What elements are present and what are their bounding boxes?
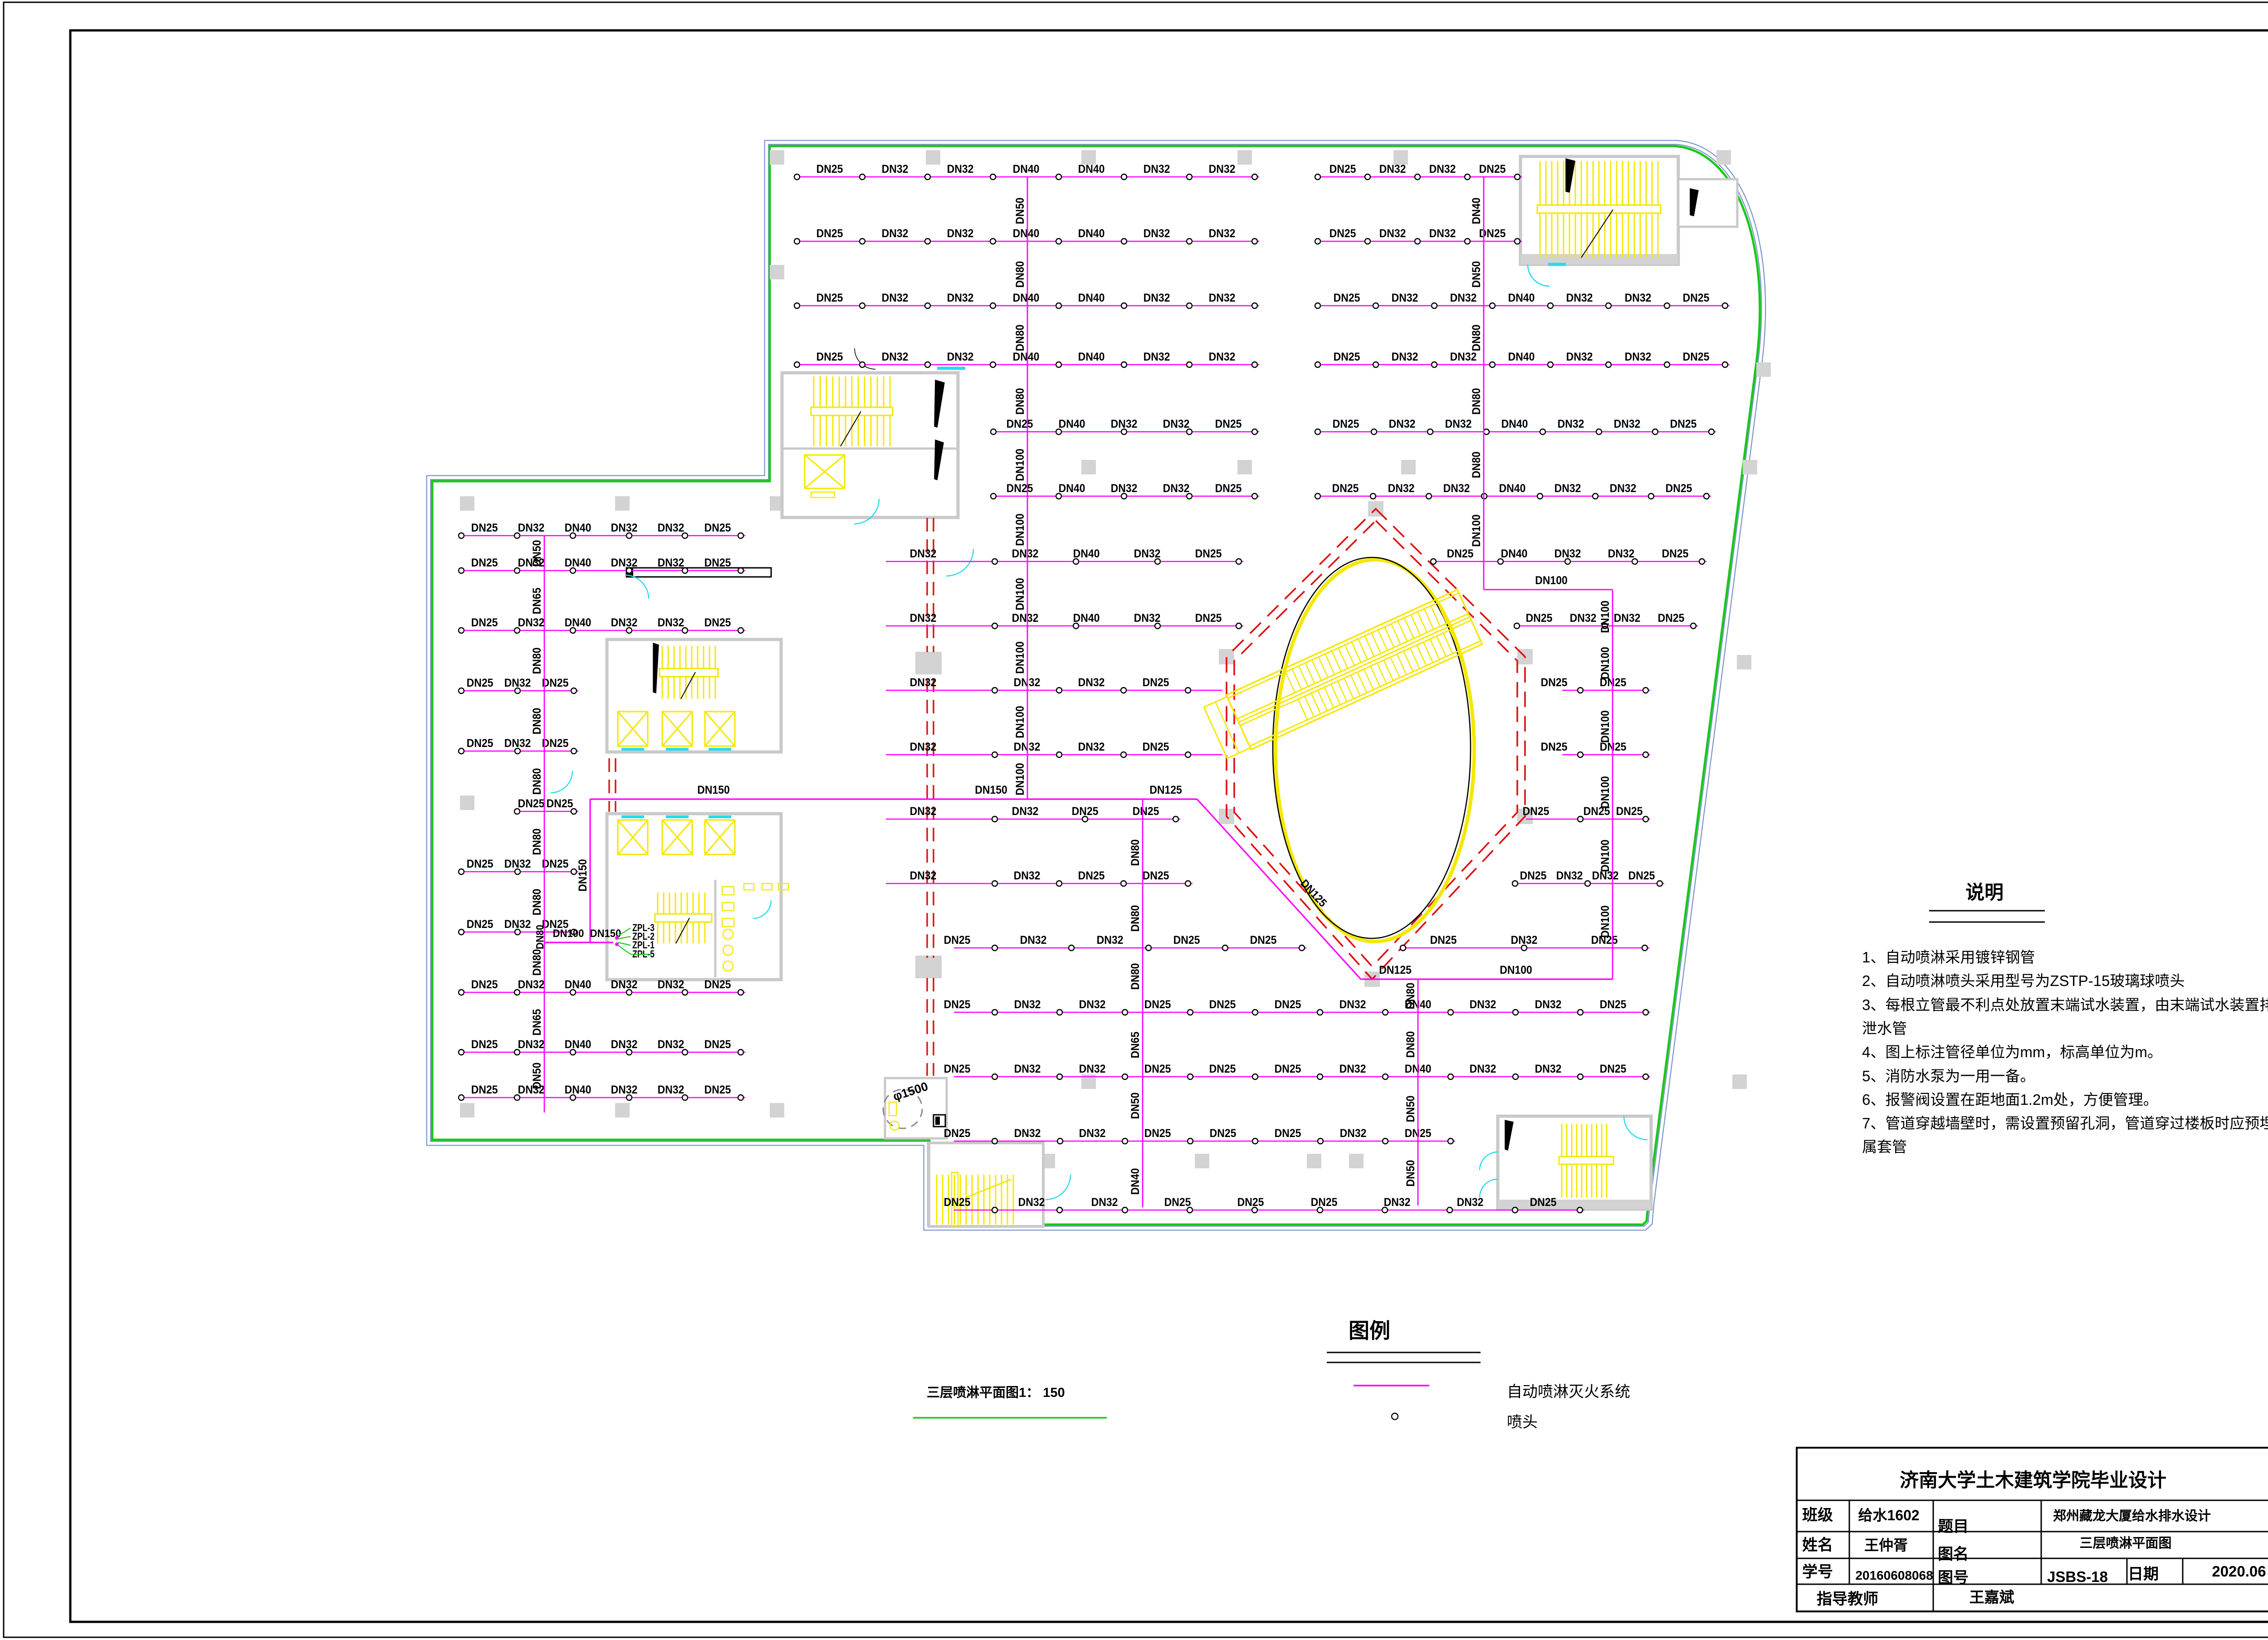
svg-text:DN25: DN25 (944, 1127, 971, 1140)
svg-text:DN25: DN25 (1144, 998, 1171, 1011)
svg-text:DN100: DN100 (553, 927, 584, 939)
svg-text:DN25: DN25 (944, 1063, 971, 1075)
svg-text:属套管: 属套管 (1862, 1138, 1907, 1155)
svg-text:DN25: DN25 (1209, 1063, 1236, 1075)
svg-text:DN32: DN32 (1554, 547, 1581, 560)
svg-text:DN40: DN40 (1501, 547, 1528, 560)
svg-text:DN40: DN40 (565, 522, 591, 534)
svg-text:DN25: DN25 (704, 978, 731, 991)
svg-text:DN100: DN100 (1014, 763, 1026, 796)
svg-text:DN32: DN32 (1610, 482, 1637, 495)
svg-text:DN25: DN25 (1143, 741, 1169, 753)
svg-text:DN25: DN25 (1007, 418, 1033, 430)
svg-text:7、管道穿越墙壁时，需设置预留孔洞，管道穿过楼板时应预埋金: 7、管道穿越墙壁时，需设置预留孔洞，管道穿过楼板时应预埋金 (1862, 1115, 2268, 1132)
svg-text:DN25: DN25 (1330, 227, 1356, 240)
svg-text:DN25: DN25 (467, 677, 494, 689)
svg-text:DN25: DN25 (816, 163, 843, 176)
svg-text:DN80: DN80 (531, 708, 543, 735)
svg-text:郑州藏龙大厦给水排水设计: 郑州藏龙大厦给水排水设计 (2053, 1508, 2211, 1523)
svg-text:DN32: DN32 (1163, 418, 1190, 430)
svg-text:DN32: DN32 (1012, 805, 1039, 818)
svg-text:DN32: DN32 (910, 612, 937, 625)
svg-text:DN80: DN80 (1470, 388, 1483, 415)
svg-text:DN100: DN100 (1599, 710, 1612, 743)
svg-text:DN150: DN150 (697, 784, 730, 796)
svg-text:DN80: DN80 (534, 925, 546, 949)
svg-text:DN32: DN32 (882, 351, 909, 363)
svg-text:DN80: DN80 (1014, 388, 1026, 415)
svg-text:DN25: DN25 (1143, 869, 1169, 882)
svg-text:DN150: DN150 (975, 784, 1007, 796)
svg-text:DN100: DN100 (1500, 964, 1532, 976)
svg-text:5、消防水泵为一用一备。: 5、消防水泵为一用一备。 (1862, 1068, 2035, 1084)
svg-text:DN100: DN100 (1470, 514, 1483, 547)
svg-text:DN32: DN32 (1134, 547, 1161, 560)
svg-text:DN32: DN32 (1450, 351, 1477, 363)
svg-text:DN32: DN32 (910, 676, 937, 689)
svg-text:DN32: DN32 (1144, 292, 1170, 304)
svg-text:DN25: DN25 (1007, 482, 1033, 495)
svg-text:DN25: DN25 (1430, 934, 1457, 947)
svg-text:DN32: DN32 (1511, 934, 1538, 947)
svg-text:DN32: DN32 (611, 522, 638, 534)
svg-text:DN40: DN40 (565, 978, 591, 991)
svg-text:DN25: DN25 (1164, 1196, 1191, 1209)
svg-text:DN32: DN32 (1566, 351, 1593, 363)
svg-text:DN32: DN32 (1209, 227, 1236, 240)
svg-text:DN100: DN100 (1599, 840, 1612, 872)
svg-text:DN32: DN32 (1445, 418, 1472, 430)
svg-text:DN25: DN25 (1628, 869, 1655, 882)
svg-text:三层喷淋平面图: 三层喷淋平面图 (2079, 1536, 2171, 1551)
svg-text:DN32: DN32 (611, 616, 638, 629)
svg-text:DN32: DN32 (1470, 1063, 1496, 1075)
svg-text:DN40: DN40 (1059, 482, 1085, 495)
svg-text:JSBS-18: JSBS-18 (2047, 1568, 2108, 1585)
svg-text:DN50: DN50 (531, 1063, 543, 1089)
svg-text:DN32: DN32 (1558, 418, 1584, 430)
svg-text:DN32: DN32 (882, 292, 909, 304)
svg-text:DN32: DN32 (947, 163, 974, 176)
svg-text:DN25: DN25 (704, 1038, 731, 1051)
svg-text:DN25: DN25 (1275, 1127, 1301, 1140)
svg-text:DN40: DN40 (1078, 351, 1105, 363)
svg-text:DN80: DN80 (531, 829, 543, 855)
svg-text:DN25: DN25 (1479, 227, 1506, 240)
svg-text:DN25: DN25 (1173, 934, 1200, 947)
svg-text:DN32: DN32 (1625, 292, 1652, 304)
svg-text:DN25: DN25 (1334, 292, 1360, 304)
svg-text:DN25: DN25 (704, 616, 731, 629)
svg-text:DN25: DN25 (1600, 998, 1627, 1011)
svg-text:DN65: DN65 (531, 1009, 543, 1036)
svg-text:DN40: DN40 (1508, 351, 1535, 363)
svg-text:DN32: DN32 (611, 1084, 638, 1096)
svg-text:DN100: DN100 (1014, 449, 1026, 481)
svg-text:DN32: DN32 (611, 978, 638, 991)
svg-text:2、自动喷淋喷头采用型号为ZSTP-15玻璃球喷头: 2、自动喷淋喷头采用型号为ZSTP-15玻璃球喷头 (1862, 972, 2185, 989)
svg-text:DN25: DN25 (1479, 163, 1506, 176)
svg-text:DN25: DN25 (944, 998, 971, 1011)
svg-text:DN32: DN32 (910, 741, 937, 753)
svg-text:DN32: DN32 (910, 869, 937, 882)
svg-text:DN32: DN32 (1340, 1127, 1367, 1140)
svg-text:DN25: DN25 (467, 737, 494, 750)
svg-text:DN25: DN25 (1195, 612, 1222, 625)
svg-text:DN25: DN25 (1541, 741, 1568, 753)
svg-text:DN25: DN25 (1250, 934, 1277, 947)
svg-text:DN40: DN40 (565, 1038, 591, 1051)
svg-text:4、图上标注管径单位为mm，标高单位为m。: 4、图上标注管径单位为mm，标高单位为m。 (1862, 1044, 2162, 1060)
svg-text:DN100: DN100 (1014, 578, 1026, 610)
svg-text:DN25: DN25 (1666, 482, 1692, 495)
svg-text:DN25: DN25 (1275, 1063, 1301, 1075)
svg-text:DN50: DN50 (1404, 1096, 1417, 1123)
svg-text:DN32: DN32 (518, 616, 545, 629)
svg-text:DN25: DN25 (1143, 676, 1169, 689)
svg-text:DN25: DN25 (547, 797, 573, 810)
svg-text:DN100: DN100 (1599, 600, 1612, 633)
svg-text:DN32: DN32 (1450, 292, 1477, 304)
svg-text:DN25: DN25 (944, 1196, 971, 1209)
svg-text:DN40: DN40 (1013, 163, 1040, 176)
svg-text:DN32: DN32 (1209, 351, 1236, 363)
svg-text:DN25: DN25 (704, 556, 731, 569)
svg-text:DN32: DN32 (1535, 1063, 1562, 1075)
svg-text:DN40: DN40 (1129, 1168, 1142, 1195)
svg-text:DN32: DN32 (1614, 418, 1641, 430)
svg-text:DN25: DN25 (816, 227, 843, 240)
svg-text:DN25: DN25 (1209, 998, 1236, 1011)
svg-text:DN80: DN80 (1404, 1031, 1417, 1058)
svg-text:DN40: DN40 (1470, 198, 1483, 225)
svg-text:DN32: DN32 (947, 351, 974, 363)
svg-text:DN25: DN25 (1541, 676, 1568, 689)
svg-text:DN32: DN32 (504, 918, 531, 931)
svg-text:DN32: DN32 (1097, 934, 1124, 947)
svg-text:DN80: DN80 (531, 949, 543, 976)
svg-text:DN25: DN25 (1215, 482, 1242, 495)
svg-text:DN32: DN32 (1379, 227, 1406, 240)
svg-text:DN25: DN25 (1333, 418, 1359, 430)
svg-text:DN32: DN32 (1608, 547, 1635, 560)
svg-text:3、每根立管最不利点处放置末端试水装置，由末端试水装置排入: 3、每根立管最不利点处放置末端试水装置，由末端试水装置排入 (1862, 996, 2268, 1013)
svg-text:DN25: DN25 (1144, 1063, 1171, 1075)
svg-text:DN32: DN32 (1144, 227, 1170, 240)
svg-text:DN25: DN25 (1311, 1196, 1338, 1209)
svg-text:DN32: DN32 (1566, 292, 1593, 304)
svg-text:DN80: DN80 (1470, 452, 1483, 478)
svg-text:DN32: DN32 (1209, 163, 1236, 176)
svg-text:DN25: DN25 (1210, 1127, 1237, 1140)
svg-text:DN25: DN25 (1523, 805, 1549, 818)
svg-text:DN25: DN25 (1275, 998, 1301, 1011)
svg-text:DN100: DN100 (1599, 776, 1612, 809)
svg-text:DN32: DN32 (1163, 482, 1190, 495)
svg-text:DN25: DN25 (1072, 805, 1099, 818)
svg-text:DN32: DN32 (504, 858, 531, 870)
svg-text:DN40: DN40 (1078, 227, 1105, 240)
svg-text:DN32: DN32 (1014, 1127, 1041, 1140)
svg-text:DN32: DN32 (1443, 482, 1470, 495)
svg-text:DN32: DN32 (1014, 869, 1041, 882)
svg-text:DN32: DN32 (1389, 418, 1416, 430)
svg-text:DN25: DN25 (704, 1084, 731, 1096)
svg-text:DN100: DN100 (1599, 647, 1612, 679)
svg-text:DN32: DN32 (947, 292, 974, 304)
svg-text:DN100: DN100 (1599, 905, 1612, 938)
svg-text:DN80: DN80 (1404, 983, 1417, 1010)
svg-text:DN32: DN32 (1078, 741, 1105, 753)
svg-text:DN32: DN32 (910, 805, 937, 818)
svg-text:DN25: DN25 (518, 797, 545, 810)
svg-text:2020.06: 2020.06 (2212, 1563, 2266, 1580)
svg-text:DN32: DN32 (1339, 998, 1366, 1011)
svg-text:DN80: DN80 (1129, 963, 1142, 990)
svg-text:DN32: DN32 (518, 978, 545, 991)
svg-text:DN32: DN32 (1339, 1063, 1366, 1075)
svg-text:DN25: DN25 (542, 737, 569, 750)
svg-text:DN32: DN32 (1020, 934, 1047, 947)
svg-text:DN25: DN25 (1600, 1063, 1627, 1075)
svg-text:DN32: DN32 (947, 227, 974, 240)
svg-text:DN25: DN25 (1670, 418, 1697, 430)
svg-text:DN100: DN100 (1535, 574, 1568, 587)
svg-text:DN25: DN25 (1334, 351, 1360, 363)
svg-text:自动喷淋灭火系统: 自动喷淋灭火系统 (1507, 1383, 1630, 1401)
svg-text:日期: 日期 (2128, 1566, 2159, 1583)
svg-text:DN32: DN32 (1470, 998, 1496, 1011)
svg-text:DN32: DN32 (504, 737, 531, 750)
svg-text:DN32: DN32 (1570, 612, 1597, 625)
svg-text:DN125: DN125 (1379, 964, 1412, 976)
svg-text:DN32: DN32 (1209, 292, 1236, 304)
svg-text:DN32: DN32 (1379, 163, 1406, 176)
svg-text:DN25: DN25 (1616, 805, 1643, 818)
svg-text:DN65: DN65 (531, 588, 543, 615)
svg-text:DN80: DN80 (1129, 840, 1142, 866)
svg-text:DN25: DN25 (471, 556, 498, 569)
svg-text:DN32: DN32 (518, 1038, 545, 1051)
svg-text:DN25: DN25 (1530, 1196, 1557, 1209)
svg-text:DN25: DN25 (471, 522, 498, 534)
svg-text:DN25: DN25 (1447, 547, 1474, 560)
svg-text:DN32: DN32 (1014, 1063, 1041, 1075)
svg-text:DN25: DN25 (1237, 1196, 1264, 1209)
svg-text:DN150: DN150 (577, 859, 589, 892)
svg-text:DN25: DN25 (467, 918, 494, 931)
svg-text:王嘉斌: 王嘉斌 (1970, 1589, 2014, 1606)
svg-text:DN32: DN32 (882, 163, 909, 176)
svg-text:DN80: DN80 (531, 768, 543, 795)
svg-text:DN25: DN25 (471, 1084, 498, 1096)
svg-text:DN32: DN32 (611, 556, 638, 569)
svg-text:DN125: DN125 (1149, 784, 1182, 796)
svg-text:DN25: DN25 (944, 934, 971, 947)
svg-text:DN32: DN32 (658, 556, 684, 569)
svg-text:DN25: DN25 (1133, 805, 1159, 818)
svg-text:DN32: DN32 (1535, 998, 1562, 1011)
svg-text:DN25: DN25 (1215, 418, 1242, 430)
svg-text:DN32: DN32 (1079, 1063, 1106, 1075)
svg-text:题目: 题目 (1938, 1518, 1969, 1535)
svg-text:DN25: DN25 (1144, 1127, 1171, 1140)
svg-text:DN40: DN40 (1499, 482, 1526, 495)
svg-text:给水1602: 给水1602 (1858, 1507, 1919, 1523)
svg-text:DN50: DN50 (531, 540, 543, 567)
svg-text:DN32: DN32 (1012, 547, 1039, 560)
svg-text:DN50: DN50 (1404, 1160, 1417, 1187)
svg-text:DN40: DN40 (1073, 612, 1100, 625)
svg-text:DN40: DN40 (1059, 418, 1085, 430)
svg-text:DN80: DN80 (531, 648, 543, 674)
svg-text:图名: 图名 (1938, 1546, 1969, 1563)
svg-text:图例: 图例 (1349, 1319, 1390, 1342)
svg-text:DN32: DN32 (1012, 612, 1039, 625)
svg-text:DN32: DN32 (1078, 676, 1105, 689)
svg-text:DN32: DN32 (1018, 1196, 1045, 1209)
svg-text:DN25: DN25 (1330, 163, 1356, 176)
svg-text:DN32: DN32 (518, 522, 545, 534)
svg-text:DN65: DN65 (1129, 1032, 1142, 1059)
svg-text:DN40: DN40 (565, 616, 591, 629)
svg-text:DN25: DN25 (1662, 547, 1689, 560)
svg-text:DN40: DN40 (1013, 292, 1040, 304)
svg-text:DN50: DN50 (1014, 198, 1026, 225)
svg-text:DN80: DN80 (531, 889, 543, 916)
svg-text:DN32: DN32 (1429, 163, 1456, 176)
svg-text:王仲胥: 王仲胥 (1864, 1537, 1908, 1553)
svg-text:DN32: DN32 (611, 1038, 638, 1051)
svg-text:DN40: DN40 (565, 1084, 591, 1096)
svg-text:DN32: DN32 (1091, 1196, 1118, 1209)
svg-text:DN32: DN32 (1111, 482, 1138, 495)
svg-text:DN50: DN50 (1129, 1093, 1142, 1119)
svg-text:DN100: DN100 (1014, 513, 1026, 546)
svg-text:DN80: DN80 (1014, 325, 1026, 351)
svg-text:DN25: DN25 (1658, 612, 1685, 625)
svg-text:DN32: DN32 (658, 1038, 684, 1051)
svg-text:DN40: DN40 (1013, 227, 1040, 240)
svg-text:DN32: DN32 (1134, 612, 1161, 625)
svg-text:DN32: DN32 (1392, 351, 1418, 363)
svg-text:DN80: DN80 (1014, 261, 1026, 288)
svg-text:DN32: DN32 (658, 978, 684, 991)
svg-text:三层喷淋平面图1： 150: 三层喷淋平面图1： 150 (927, 1385, 1065, 1400)
svg-text:DN25: DN25 (704, 522, 731, 534)
svg-text:DN32: DN32 (1384, 1196, 1411, 1209)
svg-text:DN32: DN32 (1625, 351, 1652, 363)
svg-text:DN25: DN25 (467, 858, 494, 870)
svg-text:DN25: DN25 (471, 978, 498, 991)
svg-text:DN25: DN25 (1195, 547, 1222, 560)
svg-text:DN40: DN40 (1508, 292, 1535, 304)
svg-text:说明: 说明 (1965, 882, 2004, 903)
svg-text:DN32: DN32 (1388, 482, 1415, 495)
svg-text:DN80: DN80 (1129, 905, 1142, 932)
svg-text:DN32: DN32 (658, 522, 684, 534)
svg-text:DN32: DN32 (1392, 292, 1418, 304)
svg-text:DN40: DN40 (1501, 418, 1528, 430)
svg-text:DN25: DN25 (471, 616, 498, 629)
svg-text:DN40: DN40 (565, 556, 591, 569)
svg-text:DN32: DN32 (1111, 418, 1138, 430)
svg-text:DN40: DN40 (1013, 351, 1040, 363)
svg-text:DN32: DN32 (1079, 1127, 1106, 1140)
svg-text:DN40: DN40 (1073, 547, 1100, 560)
svg-text:DN32: DN32 (910, 547, 937, 560)
svg-text:6、报警阀设置在距地面1.2m处，方便管理。: 6、报警阀设置在距地面1.2m处，方便管理。 (1862, 1091, 2158, 1108)
svg-text:泄水管: 泄水管 (1862, 1020, 1907, 1037)
svg-text:DN40: DN40 (1078, 292, 1105, 304)
svg-text:DN32: DN32 (1014, 998, 1041, 1011)
svg-text:DN25: DN25 (542, 858, 569, 870)
svg-text:济南大学土木建筑学院毕业设计: 济南大学土木建筑学院毕业设计 (1900, 1469, 2166, 1491)
svg-text:图号: 图号 (1938, 1569, 1969, 1586)
svg-text:DN25: DN25 (1520, 869, 1547, 882)
svg-text:DN32: DN32 (504, 677, 531, 689)
svg-text:DN32: DN32 (1614, 612, 1641, 625)
svg-text:DN32: DN32 (658, 1084, 684, 1096)
svg-text:DN32: DN32 (1079, 998, 1106, 1011)
svg-text:DN32: DN32 (1144, 351, 1170, 363)
svg-text:DN80: DN80 (1470, 325, 1483, 351)
svg-text:学号: 学号 (1802, 1563, 1833, 1581)
svg-text:20160608068: 20160608068 (1855, 1568, 1933, 1582)
svg-text:DN32: DN32 (1457, 1196, 1484, 1209)
svg-text:DN32: DN32 (1144, 163, 1170, 176)
svg-text:DN25: DN25 (816, 292, 843, 304)
svg-text:DN25: DN25 (1683, 292, 1710, 304)
svg-text:姓名: 姓名 (1802, 1537, 1833, 1554)
svg-text:DN32: DN32 (1429, 227, 1456, 240)
svg-text:DN100: DN100 (1014, 706, 1026, 738)
svg-text:喷头: 喷头 (1507, 1414, 1538, 1431)
svg-text:班级: 班级 (1802, 1507, 1833, 1524)
svg-text:DN32: DN32 (658, 616, 684, 629)
svg-text:DN25: DN25 (1078, 869, 1105, 882)
svg-text:DN32: DN32 (882, 227, 909, 240)
svg-text:DN25: DN25 (542, 677, 569, 689)
svg-text:1、自动喷淋采用镀锌钢管: 1、自动喷淋采用镀锌钢管 (1862, 949, 2035, 966)
svg-text:DN40: DN40 (1078, 163, 1105, 176)
svg-text:DN25: DN25 (816, 351, 843, 363)
svg-text:DN50: DN50 (1470, 261, 1483, 288)
svg-text:DN25: DN25 (471, 1038, 498, 1051)
svg-text:DN32: DN32 (1554, 482, 1581, 495)
svg-text:DN25: DN25 (1526, 612, 1553, 625)
svg-text:DN25: DN25 (1332, 482, 1359, 495)
svg-text:DN100: DN100 (1014, 641, 1026, 674)
svg-text:DN25: DN25 (1683, 351, 1710, 363)
svg-text:指导教师: 指导教师 (1817, 1591, 1878, 1608)
svg-text:DN32: DN32 (1556, 869, 1583, 882)
